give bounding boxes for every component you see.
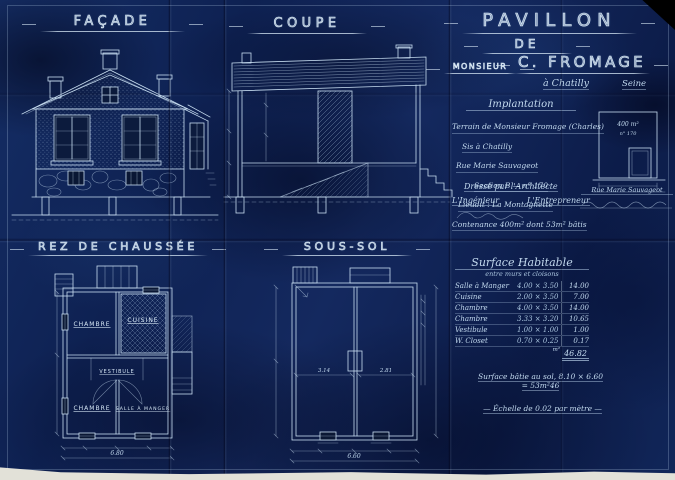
scale-note-text: — Échelle de 0.02 par mètre —: [483, 404, 602, 414]
signature-flourish: [455, 208, 525, 222]
title-de: DE: [482, 37, 572, 54]
table-row: Vestibule 1.00 × 1.00 1.00: [455, 325, 589, 336]
surface-table-subtitle: entre murs et cloisons: [455, 270, 589, 278]
coupe-label-text: COUPE: [274, 16, 341, 31]
built-area-note: Surface bâtie au sol, 8.10 × 6.60 = 53m²…: [463, 372, 618, 390]
row-name: Chambre: [455, 314, 517, 324]
signature-engineer: L'Ingénieur: [452, 196, 499, 206]
site-plan-parcel: n° 170: [620, 131, 638, 137]
total-unit: m²: [553, 347, 560, 359]
built-area-line2: = 53m²46: [522, 381, 560, 391]
table-row: Chambre 3.33 × 3.20 10.65: [455, 314, 589, 325]
rdc-label-text: REZ DE CHAUSSÉE: [38, 240, 198, 253]
row-area: 14.00: [561, 281, 589, 291]
room-label-chambre-2: CHAMBRE: [73, 405, 110, 412]
room-label-cuisine: CUISINE: [127, 317, 158, 324]
surface-table: Surface Habitable entre murs et cloisons…: [455, 256, 589, 361]
title-monsieur-text: MONSIEUR: [453, 62, 508, 71]
soussol-plan-drawing: 3.14 2.81 6.60: [268, 255, 453, 475]
row-area: 1.00: [561, 325, 589, 335]
rdc-label: REZ DE CHAUSSÉE: [28, 240, 208, 256]
title-department: Seine: [622, 79, 646, 90]
table-row: Chambre 4.00 × 3.50 14.00: [455, 303, 589, 314]
title-de-text: DE: [515, 37, 540, 51]
row-area: 10.65: [561, 314, 589, 324]
site-plan-drawing: 400 m² n° 170: [593, 100, 665, 200]
row-area: 7.00: [561, 292, 589, 302]
title-owner-name: C. FROMAGE: [514, 53, 650, 74]
scale-note: — Échelle de 0.02 par mètre —: [455, 404, 630, 413]
handwriting-flourish: [580, 197, 672, 209]
room-label-salle-a-manger: SALLE À MANGER: [116, 405, 170, 412]
table-row: Salle à Manger 4.00 × 3.50 14.00: [455, 281, 589, 292]
total-value: 46.82: [562, 349, 589, 361]
row-name: W. Closet: [455, 336, 517, 346]
title-pavillon-text: PAVILLON: [482, 10, 617, 31]
row-dims: 0.70 × 0.25: [517, 336, 561, 346]
facade-label: FAÇADE: [40, 14, 185, 32]
implantation-line: Rue Marie Sauvageot: [456, 161, 538, 173]
row-name: Vestibule: [455, 325, 517, 335]
row-name: Salle à Manger: [455, 281, 517, 291]
coupe-drawing: [222, 45, 452, 240]
row-area: 0.17: [561, 336, 589, 346]
row-area: 14.00: [561, 303, 589, 313]
signature-architect: Dressé par l'Architecte: [464, 182, 558, 192]
facade-label-text: FAÇADE: [74, 14, 152, 29]
soussol-label-text: SOUS-SOL: [304, 240, 390, 253]
title-pavillon: PAVILLON: [462, 10, 637, 34]
row-dims: 1.00 × 1.00: [517, 325, 561, 335]
row-name: Chambre: [455, 303, 517, 313]
facade-drawing: [10, 45, 220, 240]
title-owner-name-text: C. FROMAGE: [518, 53, 646, 71]
surface-table-title: Surface Habitable: [455, 256, 589, 270]
blueprint-sheet: FAÇADE COUPE REZ DE CHAUSSÉE SOUS-SOL PA…: [0, 0, 675, 480]
row-name: Cuisine: [455, 292, 517, 302]
implantation-title: Implantation: [466, 99, 576, 111]
site-plan-street: Rue Marie Sauvageot: [581, 186, 673, 195]
soussol-dim-right: 2.81: [379, 368, 392, 374]
coupe-label: COUPE: [247, 16, 367, 34]
site-plan-area: 400 m²: [616, 121, 639, 128]
table-row: W. Closet 0.70 × 0.25 0.17: [455, 336, 589, 347]
implantation-line: Terrain de Monsieur Fromage (Charles): [452, 122, 604, 134]
room-label-chambre-1: CHAMBRE: [73, 321, 110, 328]
row-dims: 4.00 × 3.50: [517, 281, 561, 291]
surface-table-total: m² 46.82: [455, 349, 589, 361]
implantation-line: Sis à Chatilly: [462, 142, 512, 154]
soussol-overall-dim: 6.60: [347, 453, 361, 460]
soussol-label: SOUS-SOL: [282, 240, 412, 256]
row-dims: 4.00 × 3.50: [517, 303, 561, 313]
room-label-vestibule: VESTIBULE: [99, 369, 134, 375]
soussol-dim-left: 3.14: [318, 368, 331, 374]
table-row: Cuisine 2.00 × 3.50 7.00: [455, 292, 589, 303]
rdc-overall-dim: 6.80: [110, 450, 124, 457]
signature-contractor: L'Entrepreneur: [527, 196, 590, 206]
row-dims: 3.33 × 3.20: [517, 314, 561, 324]
row-dims: 2.00 × 3.50: [517, 292, 561, 302]
title-location: à Chatilly: [543, 78, 589, 90]
rdc-plan-drawing: CHAMBRE CUISINE VESTIBULE CHAMBRE SALLE …: [55, 258, 215, 473]
